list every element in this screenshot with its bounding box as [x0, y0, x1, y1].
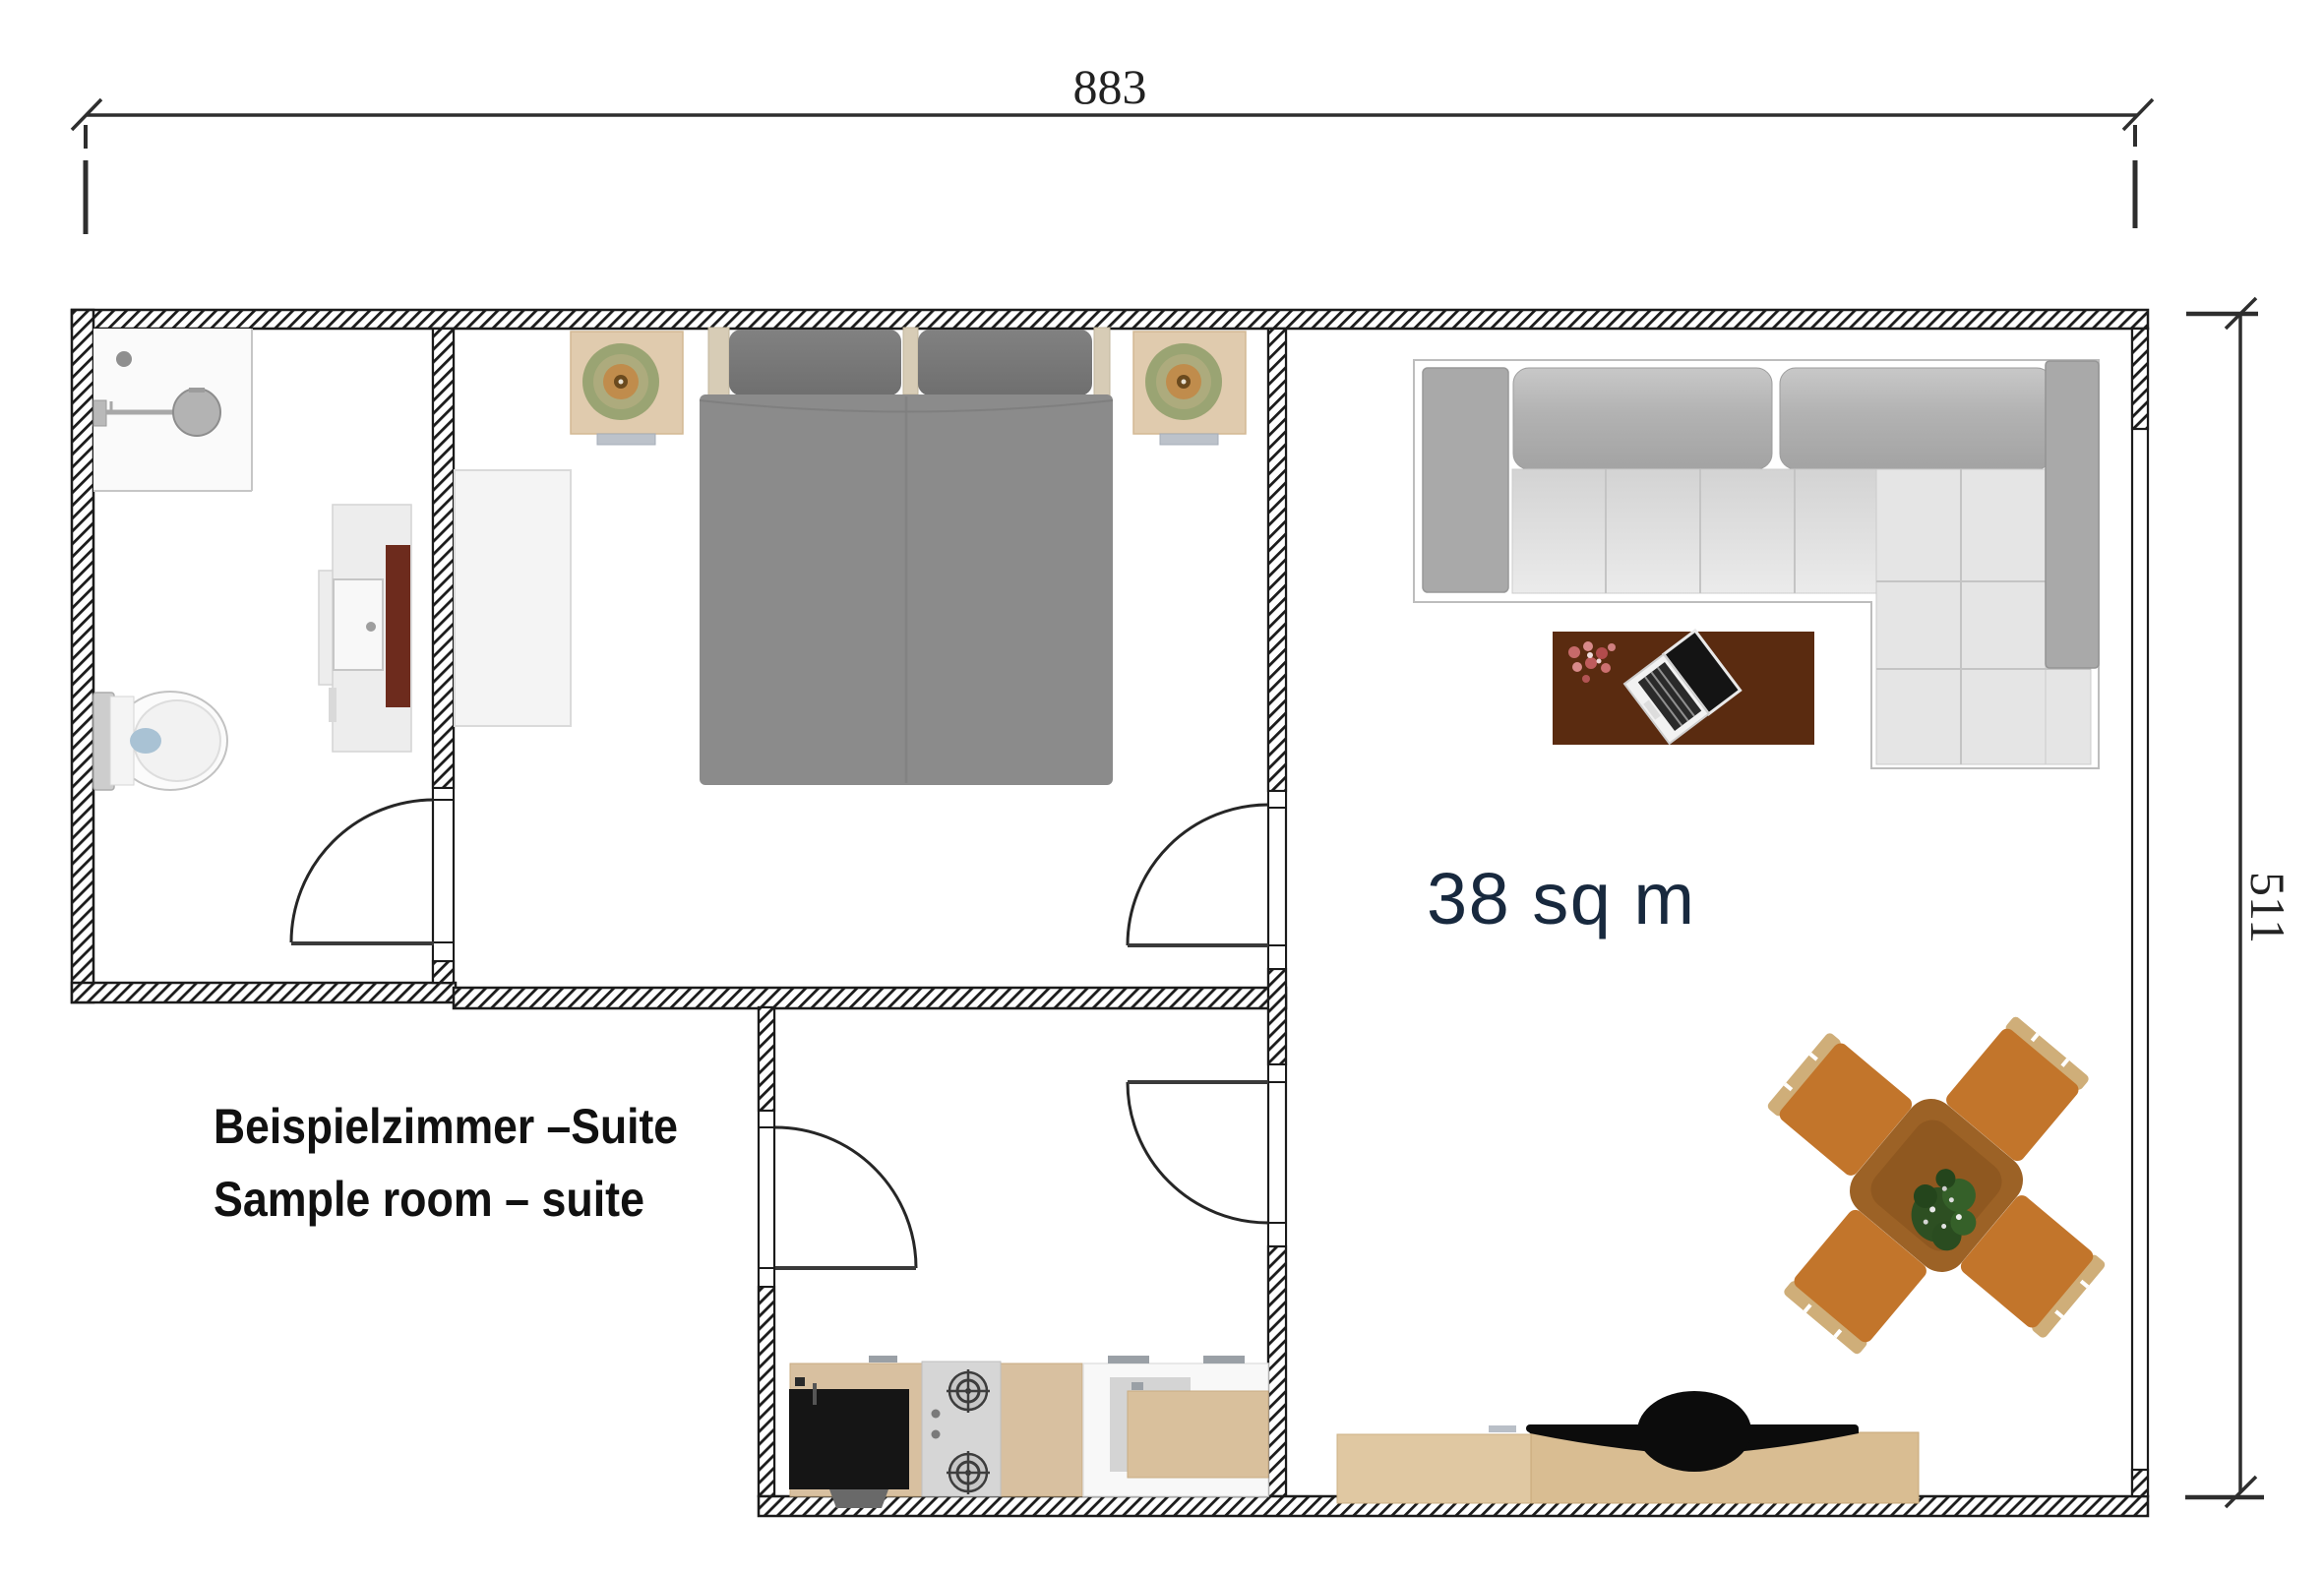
svg-text:883: 883 [1073, 59, 1147, 114]
svg-text:511: 511 [2240, 872, 2295, 943]
svg-text:Beispielzimmer –Suite: Beispielzimmer –Suite [214, 1099, 678, 1154]
svg-text:38 sq m: 38 sq m [1427, 858, 1694, 939]
svg-text:Sample room – suite: Sample room – suite [214, 1172, 644, 1227]
